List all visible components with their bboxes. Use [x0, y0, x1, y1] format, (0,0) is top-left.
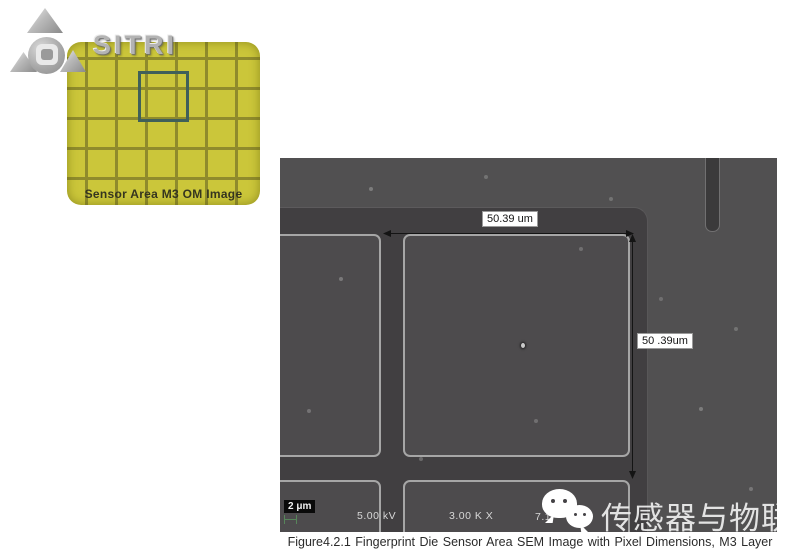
- logo-brand-text: SITRI: [93, 30, 177, 61]
- figure-caption: Figure4.2.1 Fingerprint Die Sensor Area …: [280, 535, 780, 549]
- sem-center-particle: [521, 343, 525, 348]
- sem-magnification-value: 3.00 K X: [449, 510, 493, 522]
- logo-triangle-top-icon: [27, 8, 63, 33]
- sem-pixel-square-left: [280, 234, 381, 457]
- sem-scale-bar-icon: [284, 515, 297, 524]
- figure-page: SITRI Sensor Area M3 OM Image 50.39 um 5…: [0, 0, 800, 558]
- wechat-icon: [542, 489, 600, 532]
- sem-pixel-square-main: [403, 234, 630, 457]
- om-inset-caption: Sensor Area M3 OM Image: [67, 187, 260, 201]
- sem-voltage-value: 5.00 kV: [357, 510, 396, 522]
- logo-aperture-icon: [36, 44, 58, 65]
- dimension-label-horizontal: 50.39 um: [482, 211, 538, 227]
- sem-slot: [705, 158, 720, 232]
- watermark-text: 传感器与物联网: [601, 493, 777, 532]
- dimension-arrow-horizontal: [384, 233, 633, 234]
- sem-dust-speckles: [280, 158, 282, 160]
- dimension-arrow-vertical: [632, 235, 633, 478]
- sem-scale-bar-label: 2 μm: [284, 500, 315, 513]
- sitri-logo: SITRI: [0, 0, 270, 90]
- sem-image: 50.39 um 50 .39um 2 μm 5.00 kV 3.00 K X …: [280, 158, 777, 532]
- logo-circle-icon: [28, 37, 65, 74]
- dimension-label-vertical: 50 .39um: [637, 333, 693, 349]
